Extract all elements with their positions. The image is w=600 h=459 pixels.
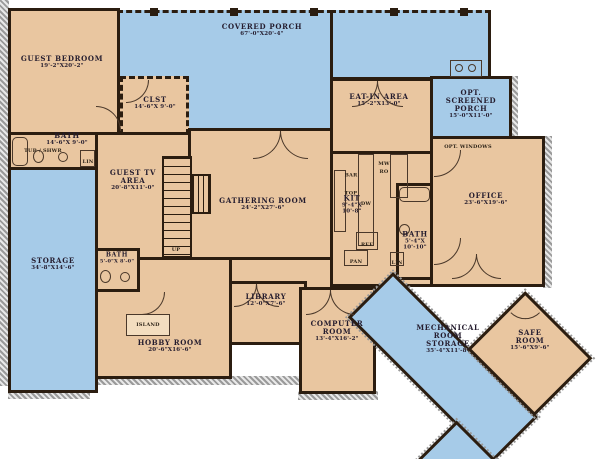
ref-label: REF — [361, 232, 373, 250]
porch-post-icon — [460, 8, 468, 16]
label-storage: STORAGE34'-8"X14'-6" — [13, 257, 93, 271]
label-library: LIBRARY12'-0"X7'-6" — [231, 293, 301, 307]
label-mechanical: MECHANICAL ROOM STORAGE35'-4"X11'-8" — [415, 324, 481, 354]
label-hobby: HOBBY ROOM20'-6"X16'-6" — [115, 339, 225, 353]
floor-plan: UP TUB / SHWR LIN BAR TOP DW MW RO REF P… — [0, 0, 600, 459]
kitchen-island: ISLAND — [126, 314, 170, 336]
room-storage — [8, 167, 98, 393]
label-covered-porch: COVERED PORCH67'-0"X20'-4" — [222, 23, 302, 37]
label-guest-bedroom: GUEST BEDROOM19'-2"X20'-2" — [17, 55, 107, 69]
label-guest-tv: GUEST TV AREA20'-8"X11'-0" — [104, 169, 162, 191]
label-screened-porch: OPT. SCREENED PORCH15'-0"X11'-0" — [435, 89, 507, 119]
label-bath-kitchen: BATH5'-4"X 10'-10" — [400, 231, 430, 252]
label-bath-hall: BATH5'-0"X 8'-0" — [99, 253, 135, 266]
label-closet: CLST14'-6"X 9'-0" — [133, 96, 178, 110]
island-label: ISLAND — [136, 322, 159, 328]
lin-label: LIN — [82, 149, 93, 167]
porch-post-icon — [310, 8, 318, 16]
toilet-icon-3 — [100, 270, 111, 283]
porch-post-icon — [150, 8, 158, 16]
label-kitchen: KIT9'-4"X 10'-8" — [335, 195, 369, 216]
label-bath-guest: BATH14'-6"X 9'-0" — [46, 132, 88, 146]
grill-burner-icon — [455, 64, 463, 72]
ro-label: RO — [380, 159, 389, 177]
label-office: OFFICE23'-6"X19'-6" — [446, 192, 526, 206]
label-eat-in: EAT-IN AREA15'-2"X13'-0" — [334, 93, 424, 107]
sink-icon-2 — [120, 272, 130, 282]
label-safe: SAFE ROOM15'-6"X9'-6" — [507, 329, 553, 351]
door-arc — [510, 298, 540, 328]
label-computer: COMPUTER ROOM13'-4"X16'-2" — [308, 320, 366, 342]
bathtub-icon-2 — [399, 187, 430, 202]
lin2-label: LIN — [391, 250, 402, 268]
stairs-up-label: UP — [172, 237, 181, 255]
label-gathering: GATHERING ROOM24'-2"X27'-6" — [203, 197, 323, 211]
label-opt-windows: OPT. WINDOWS — [444, 134, 492, 152]
pan-label: PAN — [350, 249, 362, 267]
grill-burner-icon — [468, 64, 476, 72]
porch-post-icon — [390, 8, 398, 16]
porch-post-icon — [230, 8, 238, 16]
